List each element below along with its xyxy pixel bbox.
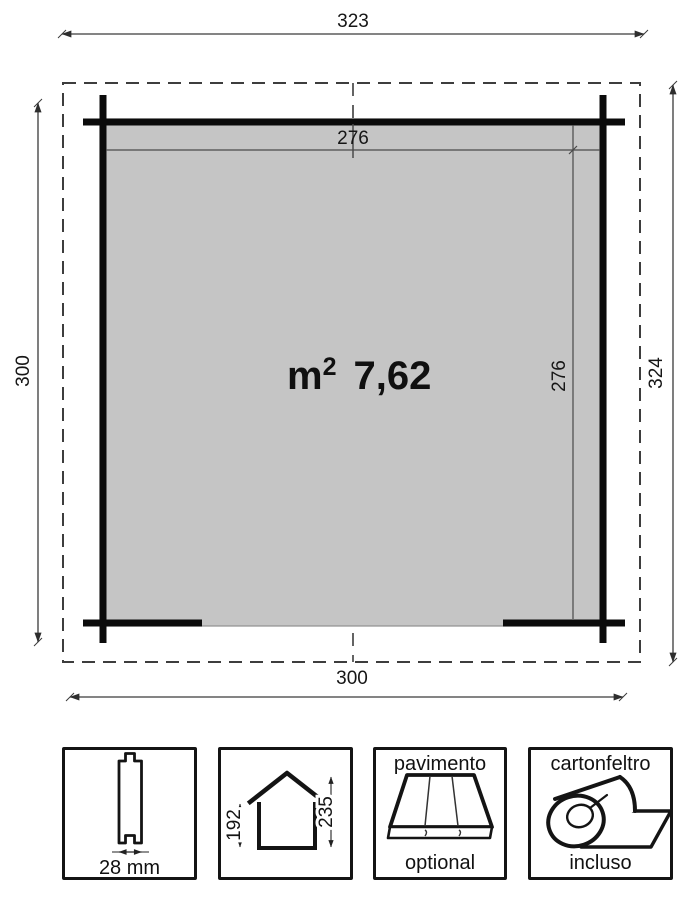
felt-title-label: cartonfeltro — [531, 753, 670, 776]
wall-thickness-label: 28 mm — [65, 857, 194, 880]
shed-floorplan-figure: 323 276 300 324 276 300 m2 7,62 28 mm — [0, 0, 700, 899]
floor-top-shape — [390, 775, 492, 827]
floor-status-label: optional — [376, 852, 504, 875]
area-unit: m — [287, 354, 323, 398]
legend-box-heights: 192 235 — [218, 747, 353, 880]
house-icon: 192 235 — [221, 750, 350, 877]
ridge-height-label: 235 — [316, 796, 337, 828]
legend-box-roof-felt: cartonfeltro incluso — [528, 747, 673, 880]
area-value: 7,62 — [353, 354, 431, 398]
board-profile-shape — [119, 754, 142, 844]
felt-status-label: incluso — [531, 852, 670, 875]
legend-box-wall-profile: 28 mm — [62, 747, 197, 880]
floor-title-label: pavimento — [376, 753, 504, 776]
floor-edge-shape — [388, 827, 492, 838]
house-roof-shape — [250, 773, 324, 802]
dim-depth-right-label: 324 — [646, 351, 668, 395]
area-exponent: 2 — [323, 355, 337, 380]
eave-height-label: 192 — [224, 809, 245, 841]
dim-width-total-label: 323 — [313, 11, 393, 33]
legend-box-floor: pavimento optional — [373, 747, 507, 880]
inner-depth-label: 276 — [549, 354, 571, 398]
dim-depth-left-label: 300 — [13, 349, 35, 393]
house-walls-shape — [259, 798, 315, 848]
dim-width-bottom-label: 300 — [312, 668, 392, 690]
inner-width-label: 276 — [323, 128, 383, 150]
area-label: m2 7,62 — [287, 354, 431, 398]
